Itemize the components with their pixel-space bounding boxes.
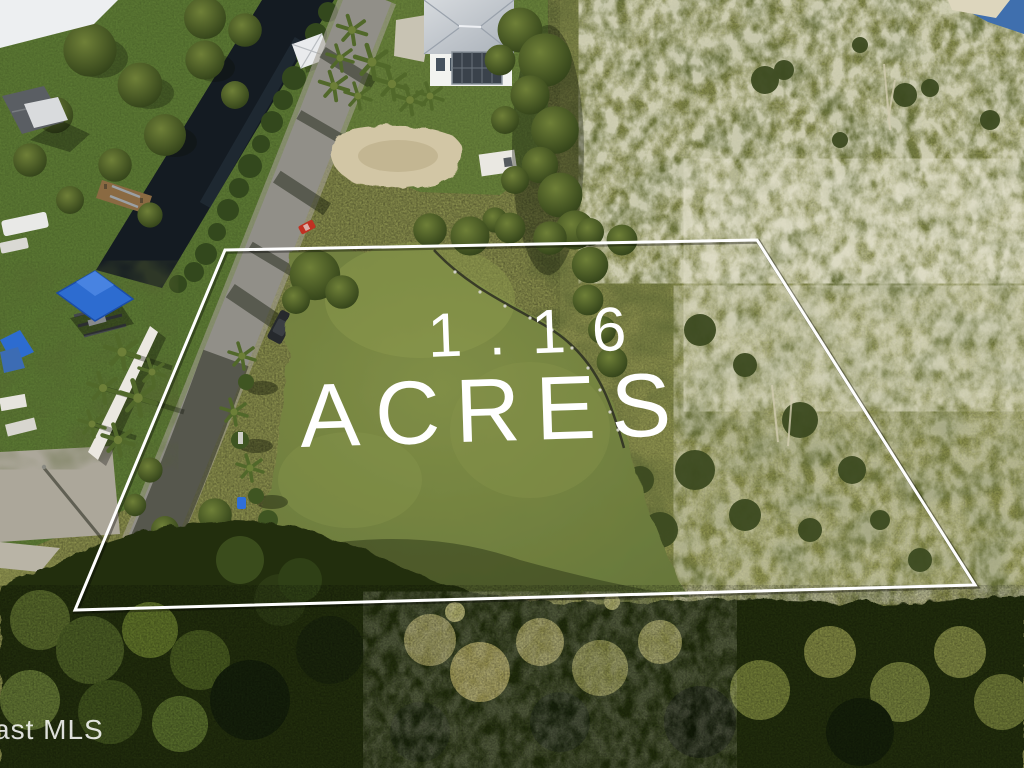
- sand-inner: [358, 140, 438, 172]
- mls-watermark: ast MLS: [0, 714, 104, 746]
- marina: [0, 270, 184, 466]
- small-sign-post: [238, 432, 243, 444]
- acreage-label-line2: ACRES: [277, 359, 710, 462]
- blue-trash-can: [237, 497, 246, 509]
- aerial-photo-stage: 1.16 ACRES ast MLS: [0, 0, 1024, 768]
